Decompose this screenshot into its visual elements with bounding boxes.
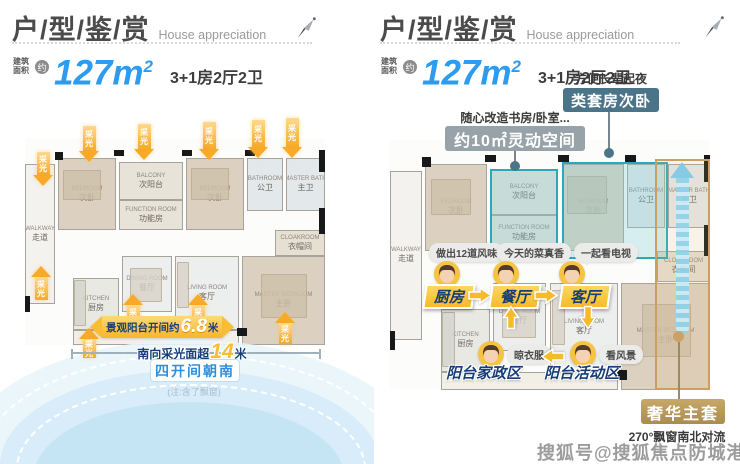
master-suite-badge: 奢华主套 (641, 399, 725, 424)
room-label-cn: 衣帽间 (288, 242, 312, 252)
title-subtitle: House appreciation (527, 28, 635, 42)
furniture-kitchen-counter (74, 280, 86, 326)
room-label-en: LIVING ROOM (187, 285, 227, 292)
orientation-badge: 四开间朝南 (150, 359, 240, 382)
room-label-en: MASTER BATH (286, 176, 325, 183)
room-label-en: KITCHEN (452, 332, 478, 339)
wall-segment (485, 155, 496, 162)
wall-segment (182, 150, 192, 156)
daylight-arrow-down: 采光 (33, 152, 53, 186)
compass-icon (291, 15, 319, 43)
title-divider (380, 42, 680, 44)
area-superscript: 2 (144, 57, 153, 76)
daylight-char: 光 (37, 289, 45, 298)
daylight-char: 采 (254, 125, 262, 134)
daylight-arrow-down: 采光 (248, 120, 268, 158)
room-label-cn: 次阳台 (139, 180, 163, 190)
room-label-en: WALKWAY (391, 247, 421, 254)
title-text: 户/型/鉴/赏 (380, 15, 518, 45)
banner-prefix: 景观阳台开间约 (106, 320, 180, 335)
flow-label-text: 客厅 (570, 286, 600, 307)
daylight-char: 光 (39, 164, 47, 173)
daylight-char: 采 (85, 340, 93, 349)
suite-connector-dot (604, 148, 614, 158)
furniture-bed (63, 170, 101, 200)
daylight-arrow-up: 采光 (275, 312, 295, 344)
area-label-line2: 面积 (381, 66, 397, 75)
flow-arrow-down-icon (580, 306, 597, 330)
flex-badge: 约10㎡灵动空间 (445, 126, 585, 151)
wall-segment (55, 152, 63, 160)
wall-segment (319, 150, 325, 172)
daylight-arrow-up: 采光 (31, 266, 51, 300)
wall-segment (390, 331, 395, 350)
watermark: 搜狐号@搜狐焦点防城港站 (537, 439, 740, 464)
room-label-cn: 公卫 (257, 183, 273, 193)
flow-arrow-right-icon (534, 287, 558, 304)
flow-arrow-up-icon (503, 306, 520, 330)
wall-segment (319, 208, 325, 234)
room-label-cn: 走道 (398, 254, 414, 264)
room-label-en: BALCONY (137, 173, 166, 180)
daylight-char: 采 (288, 124, 296, 133)
airflow-arrow (670, 162, 694, 334)
area-value: 127m2 (422, 50, 521, 91)
flow-label-text: 餐厅 (500, 286, 530, 307)
room-function: FUNCTION ROOM功能房 (119, 200, 183, 230)
furniture-kitchen-counter (442, 312, 455, 367)
airflow-arrow-head (670, 162, 694, 178)
approx-badge: 约 (403, 60, 417, 74)
daylight-char: 光 (254, 134, 262, 143)
wall-segment (114, 150, 124, 156)
page: 户/型/鉴/赏House appreciation 建筑 面积 约 127m2 … (0, 0, 740, 464)
layout-spec: 3+1房2厅2卫 (170, 64, 263, 88)
room-label-cn: 功能房 (139, 214, 163, 224)
area-label-line1: 建筑 (381, 57, 397, 66)
room-walkway: WALKWAY走道 (390, 171, 422, 340)
daylight-char: 光 (140, 137, 148, 146)
compass-icon (699, 14, 727, 42)
daylight-char: 光 (288, 133, 296, 142)
area-unit: m (480, 54, 511, 93)
room-cloak: CLOAKROOM衣帽间 (275, 230, 325, 256)
wall-segment (625, 155, 636, 162)
room-balcony2: BALCONY次阳台 (119, 162, 183, 200)
daylight-char: 采 (140, 128, 148, 137)
wall-segment (422, 157, 431, 167)
bubble-living: 一起看电视 (574, 243, 638, 262)
banner-value: 6.8 (181, 316, 207, 338)
room-label-en: KITCHEN (83, 296, 109, 303)
daylight-char: 光 (281, 334, 289, 343)
furniture-bed (431, 179, 471, 215)
title-divider (12, 42, 312, 44)
room-label-en: BATHROOM (248, 176, 282, 183)
daylight-arrow-down: 采光 (282, 118, 302, 158)
wall-segment (558, 155, 569, 162)
elder-note: 方便长辈起夜 (556, 70, 666, 87)
balcony-activity-label: 阳台活动区 (544, 362, 619, 383)
daylight-char: 采 (205, 127, 213, 136)
flex-note: 随心改造书房/卧室... (445, 109, 585, 126)
room-bath: BATHROOM公卫 (247, 158, 283, 211)
area-label: 建筑 面积 (13, 57, 29, 75)
flex-connector-dot (510, 161, 520, 171)
balcony-width-banner: 景观阳台开间约 6.8 米 (90, 316, 240, 338)
area-label-line1: 建筑 (13, 57, 29, 66)
area-number: 127 (54, 54, 112, 93)
balcony-chore-label: 阳台家政区 (446, 362, 521, 383)
room-label-en: FUNCTION ROOM (125, 207, 176, 214)
daylight-arrow-down: 采光 (79, 126, 99, 162)
daylight-arrow-down: 采光 (134, 124, 154, 160)
banner-arrow-left (90, 316, 102, 338)
room-label-cn: 厨房 (458, 339, 474, 349)
room-label-cn: 厨房 (88, 303, 104, 313)
room-label-cn: 主卫 (298, 183, 314, 193)
flow-label-text: 厨房 (434, 286, 464, 307)
area-unit: m (112, 54, 143, 93)
suite-connector-line (608, 112, 610, 150)
orientation-note: (注:含了飘窗) (142, 385, 246, 398)
daylight-char: 采 (281, 325, 289, 334)
daylight-arrow-down: 采光 (199, 122, 219, 160)
title-text: 户/型/鉴/赏 (12, 15, 150, 45)
title-subtitle: House appreciation (159, 28, 267, 42)
area-label-line2: 面积 (13, 66, 29, 75)
flex-space-highlight (490, 169, 558, 251)
area-superscript: 2 (512, 57, 521, 76)
bubble-dining: 今天的菜真香 (497, 243, 571, 262)
daylight-char: 光 (85, 139, 93, 148)
master-connector-line (678, 342, 680, 399)
master-connector-dot (673, 331, 684, 342)
area-number: 127 (422, 54, 480, 93)
room-label-en: CLOAKROOM (280, 235, 319, 242)
banner-arrow-right (222, 316, 234, 338)
area-label: 建筑 面积 (381, 57, 397, 75)
approx-badge: 约 (35, 60, 49, 74)
banner-unit: 米 (208, 320, 219, 335)
airflow-arrow-shaft (676, 178, 689, 334)
daylight-char: 光 (205, 136, 213, 145)
bubble-kitchen: 做出12道风味 (429, 243, 504, 262)
furniture-bed (191, 168, 229, 200)
daylight-char: 采 (39, 155, 47, 164)
daylight-char: 采 (85, 130, 93, 139)
daylight-char: 采 (37, 280, 45, 289)
area-value: 127m2 (54, 50, 153, 91)
wall-segment (25, 296, 30, 312)
room-label-cn: 走道 (32, 233, 48, 243)
room-label-en: WALKWAY (25, 226, 55, 233)
